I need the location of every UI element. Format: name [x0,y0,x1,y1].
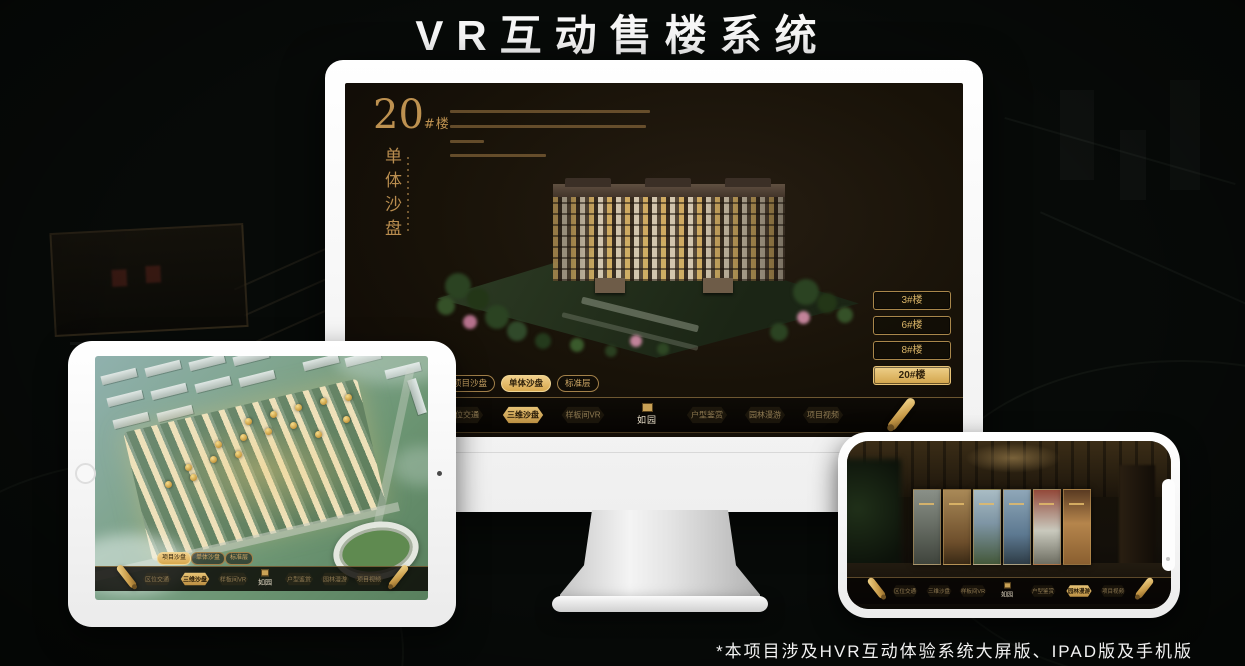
tree [507,321,527,341]
footnote: *本项目涉及HVR互动体验系统大屏版、IPAD版及手机版 [716,637,1193,662]
description-line [450,140,484,143]
gallery-panel[interactable] [913,489,941,565]
city-block [194,376,231,393]
ipad-tab-single-sandtable[interactable]: 单体沙盘 [191,552,225,565]
phone-navbar: 区位交通 三维沙盘 样板间VR 如园 户型鉴赏 园林漫游 项目视频 [847,577,1171,604]
background-building [1060,90,1094,180]
background-road-line [1040,211,1245,310]
plaque-seal-mark [111,269,127,287]
building-marker[interactable] [315,431,322,438]
gallery-panel[interactable] [973,489,1001,565]
ipad-nav-item-location-traffic[interactable]: 区位交通 [140,573,174,586]
flower-tree [630,335,642,347]
city-block [106,390,143,407]
city-block [144,360,181,377]
building-marker[interactable] [343,416,350,423]
building-marker[interactable] [215,441,222,448]
gallery-panel[interactable] [943,489,971,565]
background-building [1170,80,1200,190]
cloud [393,446,428,486]
building-marker[interactable] [290,422,297,429]
ipad-nav-item-floorplan[interactable]: 户型鉴赏 [282,573,316,586]
tab-single-sandtable[interactable]: 单体沙盘 [501,375,551,392]
scroll-icon[interactable] [1134,576,1154,599]
tree [657,343,669,355]
phone-device: 区位交通 三维沙盘 样板间VR 如园 户型鉴赏 园林漫游 项目视频 [838,432,1180,618]
ruyuan-logo-label: 如园 [258,577,272,587]
phone-nav-item-garden-tour[interactable]: 园林漫游 [1064,585,1094,597]
scroll-icon[interactable] [387,564,409,590]
description-line [450,125,646,128]
tree [437,297,455,315]
tree [570,338,584,352]
tree [605,345,617,357]
floor-button-8[interactable]: 8#楼 [873,341,951,360]
city-block [238,370,275,387]
building-marker[interactable] [165,481,172,488]
building-marker[interactable] [240,434,247,441]
interior-light [965,443,1061,473]
tree [817,293,837,313]
floor-button-20[interactable]: 20#楼 [873,366,951,385]
phone-screen: 区位交通 三维沙盘 样板间VR 如园 户型鉴赏 园林漫游 项目视频 [847,441,1171,609]
block-number-suffix: #楼 [424,117,450,132]
phone-nav-item-floorplan[interactable]: 户型鉴赏 [1028,585,1058,597]
tab-standard-floor[interactable]: 标准层 [557,375,599,392]
seal-icon [261,569,269,576]
roof-gable [565,178,611,187]
building-porch [703,278,733,293]
ipad-device: 项目沙盘 单体沙盘 标准层 区位交通 三维沙盘 样板间VR 如园 户型鉴赏 园林… [68,341,456,627]
flower-tree [797,311,810,324]
camera-icon [437,471,442,476]
monitor-stand-base [552,596,768,612]
flower-tree [463,315,477,329]
nav-item-model-room-vr[interactable]: 样板间VR [557,407,608,424]
tree [837,307,853,323]
building-marker[interactable] [270,411,277,418]
phone-nav-item-location-traffic[interactable]: 区位交通 [890,585,920,597]
description-line [450,110,650,113]
city-block [188,356,225,371]
ipad-nav-item-3d-sandtable[interactable]: 三维沙盘 [178,573,212,586]
building-marker[interactable] [295,404,302,411]
plaque-seal-mark [145,265,161,283]
building-marker[interactable] [345,394,352,401]
roof-gable [725,178,771,187]
phone-nav-item-model-room-vr[interactable]: 样板间VR [957,585,989,597]
ipad-navbar: 区位交通 三维沙盘 样板间VR 如园 户型鉴赏 园林漫游 项目视频 [95,566,428,591]
nav-item-project-video[interactable]: 项目视频 [799,407,847,424]
scroll-icon[interactable] [886,396,916,431]
scroll-icon[interactable] [866,576,886,599]
city-block [112,412,149,429]
nav-item-floorplan[interactable]: 户型鉴赏 [683,407,731,424]
building-marker[interactable] [235,451,242,458]
page-title: VR互动售楼系统 [0,2,1245,63]
building-marker[interactable] [190,474,197,481]
gallery-panel[interactable] [1063,489,1091,565]
building-marker[interactable] [185,464,192,471]
tree [467,288,489,310]
ipad-tab-project-sandtable[interactable]: 项目沙盘 [157,552,191,565]
gallery-panel[interactable] [1033,489,1061,565]
ipad-nav-item-project-video[interactable]: 项目视频 [352,573,386,586]
ipad-screen: 项目沙盘 单体沙盘 标准层 区位交通 三维沙盘 样板间VR 如园 户型鉴赏 园林… [95,356,428,600]
floor-button-6[interactable]: 6#楼 [873,316,951,335]
building-model[interactable] [553,178,785,298]
city-block [150,383,187,400]
building-marker[interactable] [265,428,272,435]
ipad-nav-item-garden-tour[interactable]: 园林漫游 [318,573,352,586]
city-block [302,356,339,371]
ruyuan-logo[interactable]: 如园 [637,403,657,426]
tree [770,323,788,341]
building-marker[interactable] [320,398,327,405]
block-subtitle: 单体沙盘 [379,147,404,243]
description-line [450,154,546,157]
city-block [100,368,137,385]
floor-button-3[interactable]: 3#楼 [873,291,951,310]
phone-nav-item-project-video[interactable]: 项目视频 [1098,585,1128,597]
nav-item-garden-tour[interactable]: 园林漫游 [741,407,789,424]
block-subtitle-english [407,153,409,231]
home-button[interactable] [75,463,96,484]
seal-icon [1003,582,1010,588]
building-porch [595,278,625,293]
background-building [1120,130,1146,200]
ruyuan-logo-label: 如园 [637,413,657,426]
poster-canvas: VR互动售楼系统 20#楼 单体沙盘 [0,0,1245,666]
seal-icon [641,403,652,412]
ruyuan-logo-label: 如园 [1001,589,1013,598]
roof-gable [645,178,691,187]
background-plaque [49,223,248,337]
building-marker[interactable] [210,456,217,463]
tree [485,305,509,329]
gallery-panel[interactable] [1003,489,1031,565]
ipad-tab-standard-floor[interactable]: 标准层 [225,552,253,565]
phone-notch [1162,479,1175,571]
tree [535,333,551,349]
block-number: 20#楼 [373,95,450,135]
building-facade-shade [553,197,785,281]
ruyuan-logo[interactable]: 如园 [1001,582,1013,598]
ipad-nav-item-model-room-vr[interactable]: 样板间VR [215,573,251,586]
scroll-icon[interactable] [115,564,137,590]
ruyuan-logo[interactable]: 如园 [258,569,272,587]
tree [793,279,819,305]
building-marker[interactable] [245,418,252,425]
nav-item-3d-sandtable[interactable]: 三维沙盘 [499,407,547,424]
phone-nav-item-3d-sandtable[interactable]: 三维沙盘 [924,585,954,597]
city-block [232,356,269,366]
